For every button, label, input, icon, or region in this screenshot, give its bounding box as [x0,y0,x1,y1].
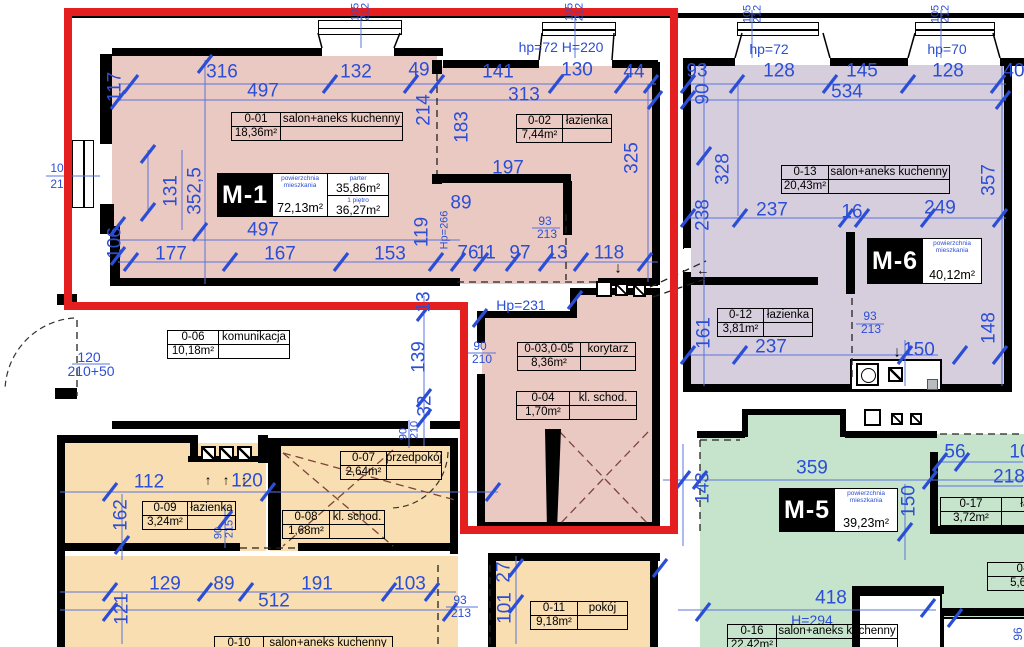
installation-box-icon [237,446,252,461]
dimension-tick [676,471,690,489]
room-table-blank [581,357,635,370]
room-table-row: 0-18 [988,563,1024,577]
dimension-label: 359 [796,459,828,478]
dimension-label: 218 [993,468,1024,487]
dimension-label: 210 [472,353,492,365]
room-id: 0-16 [728,625,777,638]
window-reveal-line [993,33,1000,58]
apartment-id-m6: M-6 [868,239,922,283]
dimension-label: 96 [1012,627,1024,640]
dimension-label: 213 [537,228,557,240]
room-table: 0-12łazienka3,81m² [717,308,813,337]
window-reveal-line [823,33,830,58]
room-table-row: 0-10salon+aneks kuchenny [215,637,392,647]
dimension-label: 145 [846,62,878,81]
room-table: 0-03,0-05korytarz8,36m² [517,342,636,371]
dimension-label: 534 [831,83,863,102]
installation-box-icon [219,446,234,461]
dimension-label: 101 [496,592,515,624]
area-title: powierzchnia mieszkania [835,489,897,516]
dimension-label: 191 [301,575,333,594]
dimension-label: 13 [546,244,567,263]
dimension-label: 197 [492,159,524,178]
wall-segment [930,526,1024,534]
dimension-label: 40 [1003,62,1024,81]
washer-drum-icon [861,368,876,383]
dimension-label: 212 [361,3,372,21]
washer-icon [856,363,879,386]
wall-segment [1004,63,1012,392]
wall-segment [652,62,660,285]
window-sill-midline [916,29,994,31]
wall-segment [563,181,572,235]
room-fill [742,415,845,440]
wall-segment [683,384,1009,392]
wall-segment [930,452,938,532]
dimension-label: 153 [374,245,406,264]
wall-segment [432,60,442,74]
window-reveal-line [318,33,322,48]
room-name: korytarz [581,343,635,356]
dimension-label: 119 [413,217,432,247]
room-area: 2,64m² [341,466,387,479]
wall-segment [690,277,818,285]
room-table-row: 5,69m² [988,577,1024,590]
room-table-blank [829,180,949,193]
total-area: 40,12m² [923,268,981,283]
installation-box-icon [615,283,628,296]
room-table-blank [330,525,384,538]
dimension-label: 21 [50,178,63,190]
dimension-label: 131 [162,175,181,207]
dimension-label: 132 [340,63,372,82]
dimension-label: 143 [694,472,713,504]
wall-segment [650,553,658,647]
wall-segment [272,438,458,446]
dimension-label: 141 [482,63,514,82]
room-table-row: 0-02łazienka [517,115,611,129]
dimension-label: 162 [112,499,131,531]
room-name: łazienka [764,309,812,322]
room-fill [572,295,656,315]
dimension-label: 120 [77,350,100,364]
room-table-row: 22,42m² [728,639,897,647]
dimension-label: 89 [450,194,471,213]
dimension-label: 106 [106,227,125,259]
room-table-row: 3,81m² [718,323,812,336]
area-title: powierzchnia mieszkania [273,174,327,201]
wall-segment [57,543,240,551]
dimension-label: 212 [941,5,952,23]
wall-segment [742,409,846,415]
room-table: 0-07przedpokój2,64m² [340,451,442,480]
window-reveal-line [612,33,614,60]
direction-arrow-icon: ↑ [205,474,212,487]
room-table-row: 2,64m² [341,466,441,479]
dimension-label: 16 [841,203,862,222]
room-area: 22,42m² [728,639,777,647]
room-name: kl. schod. [570,392,636,405]
room-name: kl. schod. [330,511,384,524]
room-id: 0-09 [143,502,188,515]
room-area: 5,69m² [988,577,1024,590]
dimension-label: 212 [575,3,586,21]
room-table: 0-09łazienka3,24m² [142,501,236,530]
apartment-info-m6: M-6 powierzchnia mieszkania 40,12m² [867,238,982,284]
dimension-label: 497 [247,82,279,101]
room-table-blank [578,616,627,629]
room-table: 0-13salon+aneks kuchenny20,43m² [781,165,950,194]
room-table-blank [188,516,235,529]
dimension-label: hp=70 [927,42,966,56]
window-sill-midline [83,141,85,207]
room-area: 3,24m² [143,516,188,529]
apartment-info-m5: M-5 powierzchnia mieszkania 39,23m² [779,488,898,532]
room-fill [688,65,1006,387]
room-table-row: 0-07przedpokój [341,452,441,466]
room-id: 0-03,0-05 [518,343,581,356]
dimension-label: Hp=231 [496,298,545,312]
room-table: 0-16salon+aneks kuchenny22,42m² [727,624,898,647]
room-table-row: 8,36m² [518,357,635,370]
wall-segment [697,431,745,438]
wall-segment [112,278,460,286]
dimension-label: 117 [106,72,125,102]
dimension-label: 13 [415,291,434,312]
dimension-label: Hp=266 [440,211,451,250]
room-name: salon+aneks kuchenny [281,113,402,126]
room-id: 0-02 [517,115,563,128]
direction-arrow-icon: ↓ [614,261,622,276]
window-reveal-line [735,33,742,58]
dimension-label: 11 [476,244,496,263]
direction-arrow-icon: ↓ [893,345,901,360]
room-table: 0-01salon+aneks kuchenny18,36m² [231,112,403,141]
room-table-blank [281,127,402,140]
floor-area: 36,27m² [328,204,388,217]
dimension-label: 150 [903,341,935,360]
dimension-label: 93 [686,62,707,81]
room-id: 0-01 [232,113,281,126]
dimension-label: 103 [394,575,426,594]
wall-segment [488,553,660,561]
wall-segment [57,555,65,647]
room-table-row: 0-16salon+aneks kuchenny [728,625,897,639]
room-name: łazienka [188,502,235,515]
fixture-box [684,248,691,272]
wall-segment [57,435,195,443]
room-name: łazienka [1002,498,1024,511]
room-table-blank [563,129,611,142]
room-table-row: 20,43m² [782,180,949,193]
wall-segment [852,586,944,594]
room-table-row: 0-01salon+aneks kuchenny [232,113,402,127]
direction-arrow-icon: ↑ [223,474,230,487]
dimension-label: 121 [113,593,132,625]
total-area: 39,23m² [835,516,897,531]
installation-box-icon [910,413,922,425]
dimension-label: 237 [755,338,787,357]
dimension-label: 130 [561,61,593,80]
room-table-row: 7,44m² [517,129,611,142]
wall-segment [936,608,1024,616]
room-name: komunikacja [219,331,289,344]
dimension-label: 497 [247,221,279,240]
dimension-label: 112 [134,473,164,492]
wall-segment [683,270,691,392]
dimension-label: 27 [495,561,514,582]
room-id: 0-10 [215,637,264,647]
dimension-label: 93 [538,215,551,227]
window-sill [915,22,995,36]
wall-segment [683,61,691,249]
room-area: 3,81m² [718,323,764,336]
window-sill-midline [319,28,401,30]
direction-arrow-icon: ↑ [241,474,248,487]
dimension-label: 139 [410,341,429,373]
wall-segment [258,435,268,463]
installation-box-icon [201,446,216,461]
dimension-label: 148 [980,312,999,344]
wall-segment [298,543,458,551]
room-table-blank [777,639,897,647]
highlight-outline-segment [460,526,678,534]
wall-segment [112,48,322,56]
window-reveal-line [394,33,400,48]
room-area: 3,72m² [941,512,1002,525]
wall-segment [57,435,65,557]
dimension-label: 512 [258,592,290,611]
highlight-outline-segment [64,8,72,310]
wall-segment [652,288,660,530]
door-swing-arc [5,318,74,390]
wall-segment [450,438,458,554]
room-table-row: 3,72m² [941,512,1024,525]
dimension-label: 49 [408,61,429,80]
room-table-blank [570,406,636,419]
wall-segment [845,431,937,438]
dimension-label: 213 [451,607,471,619]
highlight-outline-segment [460,302,468,534]
dimension-label: 210+50 [67,364,114,378]
room-table-row: 18,36m² [232,127,402,140]
room-table: 0-11pokój9,18m² [530,601,628,630]
apartment-id-m5: M-5 [780,489,834,531]
dimension-label: 313 [508,86,540,105]
room-table: 0-04kl. schod.1,70m² [516,391,637,420]
room-area: 8,36m² [518,357,581,370]
room-table-blank [387,466,441,479]
floor-row-ground: parter 35,86m² [328,174,388,195]
room-name: przedpokój [387,452,441,465]
room-area: 1,70m² [517,406,570,419]
dimension-label: 89 [213,575,234,594]
room-table: 0-185,69m² [987,562,1024,591]
wall-segment [394,48,443,56]
room-table-blank [219,345,289,358]
installation-box-icon [864,409,881,426]
dimension-label: 32 [416,395,435,416]
dimension-label: 10 [1009,443,1024,462]
dimension-label: 325 [623,142,642,174]
room-id: 0-12 [718,309,764,322]
dimension-label: hp=72 H=220 [519,40,604,54]
room-table: 0-08kl. schod.1,68m² [282,510,385,539]
dimension-label: 10 [50,162,63,174]
room-id: 0-11 [531,602,578,615]
room-name: salon+aneks kuchenny [264,637,392,647]
dimension-label: 237 [756,201,788,220]
window-reveal-line [908,33,915,58]
highlight-outline-segment [670,8,678,534]
dimension-label: 328 [714,153,733,185]
dimension-label: 90 [473,340,486,352]
dimension-label: 93 [863,310,876,322]
room-table: 0-10salon+aneks kuchenny [214,636,393,647]
dimension-label: 212 [753,5,764,23]
dimension-label: 90 [694,83,713,104]
dimension-label: hp=72 [749,42,788,56]
room-table-row: 0-04kl. schod. [517,392,636,406]
installation-box-icon [596,281,612,297]
dimension-label: 316 [206,63,238,82]
dimension-label: 238 [694,199,713,231]
room-table: 0-06komunikacja10,18m² [167,330,290,359]
room-area: 10,18m² [168,345,219,358]
room-table-row: 1,68m² [283,525,384,538]
fixture-chip-icon [927,379,938,390]
room-name: pokój [578,602,627,615]
installation-box-icon [888,367,903,382]
room-table-row: 0-17łazienka [941,498,1024,512]
dimension-label: 177 [155,245,187,264]
dimension-label: 183 [453,111,472,143]
room-table-row: 1,70m² [517,406,636,419]
window-sill [737,22,819,36]
dimension-label: 418 [815,589,847,608]
window-sill [542,22,616,36]
room-table-row: 0-03,0-05korytarz [518,343,635,357]
dimension-label: 129 [149,575,181,594]
wall-segment [112,421,408,429]
window-sill-midline [738,29,818,31]
room-table-row: 0-12łazienka [718,309,812,323]
room-table-row: 0-11pokój [531,602,627,616]
floor-area: 35,86m² [328,182,388,195]
installation-box-icon [891,413,903,425]
floor-row-upper: 1 piętro 36,27m² [328,195,388,217]
room-id: 0-04 [517,392,570,405]
room-table-row: 0-06komunikacja [168,331,289,345]
dimension-label: 97 [509,244,530,263]
room-id: 0-06 [168,331,219,344]
area-title: powierzchnia mieszkania [923,239,981,268]
window-sill [318,20,402,35]
room-area: 18,36m² [232,127,281,140]
floor-plan: M-1 powierzchnia mieszkania 72,13m² part… [0,0,1024,647]
window-sill-midline [543,29,615,31]
total-area: 72,13m² [273,201,327,216]
dimension-label: 167 [264,245,296,264]
dimension-label: 357 [980,164,999,196]
wall-segment [268,438,281,550]
room-table-row: 10,18m² [168,345,289,358]
room-id: 0-18 [988,563,1024,576]
wall-segment [477,374,485,530]
dimension-label: 213 [861,323,881,335]
wall-segment [430,421,460,429]
room-table-row: 3,24m² [143,516,235,529]
room-id: 0-07 [341,452,387,465]
highlight-outline-segment [64,302,468,310]
room-name: salon+aneks kuchenny [829,166,949,179]
room-name: łazienka [563,115,611,128]
room-area: 1,68m² [283,525,330,538]
room-area: 9,18m² [531,616,578,629]
room-area: 7,44m² [517,129,563,142]
window-sill [72,140,94,208]
direction-arrow-icon: ← [697,264,710,277]
room-id: 0-17 [941,498,1002,511]
room-table: 0-17łazienka3,72m² [940,497,1024,526]
room-id: 0-08 [283,511,330,524]
room-table: 0-02łazienka7,44m² [516,114,612,143]
apartment-id-m1: M-1 [218,174,272,216]
dimension-label: 44 [623,63,644,82]
room-table-row: 9,18m² [531,616,627,629]
dimension-label: 128 [932,62,964,81]
room-name: salon+aneks kuchenny [777,625,897,638]
dimension-label: 161 [695,317,714,349]
dimension-label: 93 [453,594,466,606]
wall-segment [846,232,855,294]
room-table-row: 0-08kl. schod. [283,511,384,525]
room-table-blank [764,323,812,336]
room-id: 0-13 [782,166,829,179]
dimension-label: 150 [900,485,919,517]
room-table-row: 0-13salon+aneks kuchenny [782,166,949,180]
dimension-label: 352,5 [186,167,205,215]
room-table-row: 0-09łazienka [143,502,235,516]
wall-segment [55,388,77,399]
wall-segment [570,288,577,318]
room-area: 20,43m² [782,180,829,193]
dimension-label: 214 [415,94,434,126]
dimension-label: 210 [410,421,421,439]
apartment-info-m1: M-1 powierzchnia mieszkania 72,13m² part… [217,173,389,217]
room-table-blank [1002,512,1024,525]
dimension-label: 249 [924,199,956,218]
installation-box-icon [633,284,646,297]
dimension-label: 56 [944,443,965,462]
dimension-label: 128 [763,62,795,81]
